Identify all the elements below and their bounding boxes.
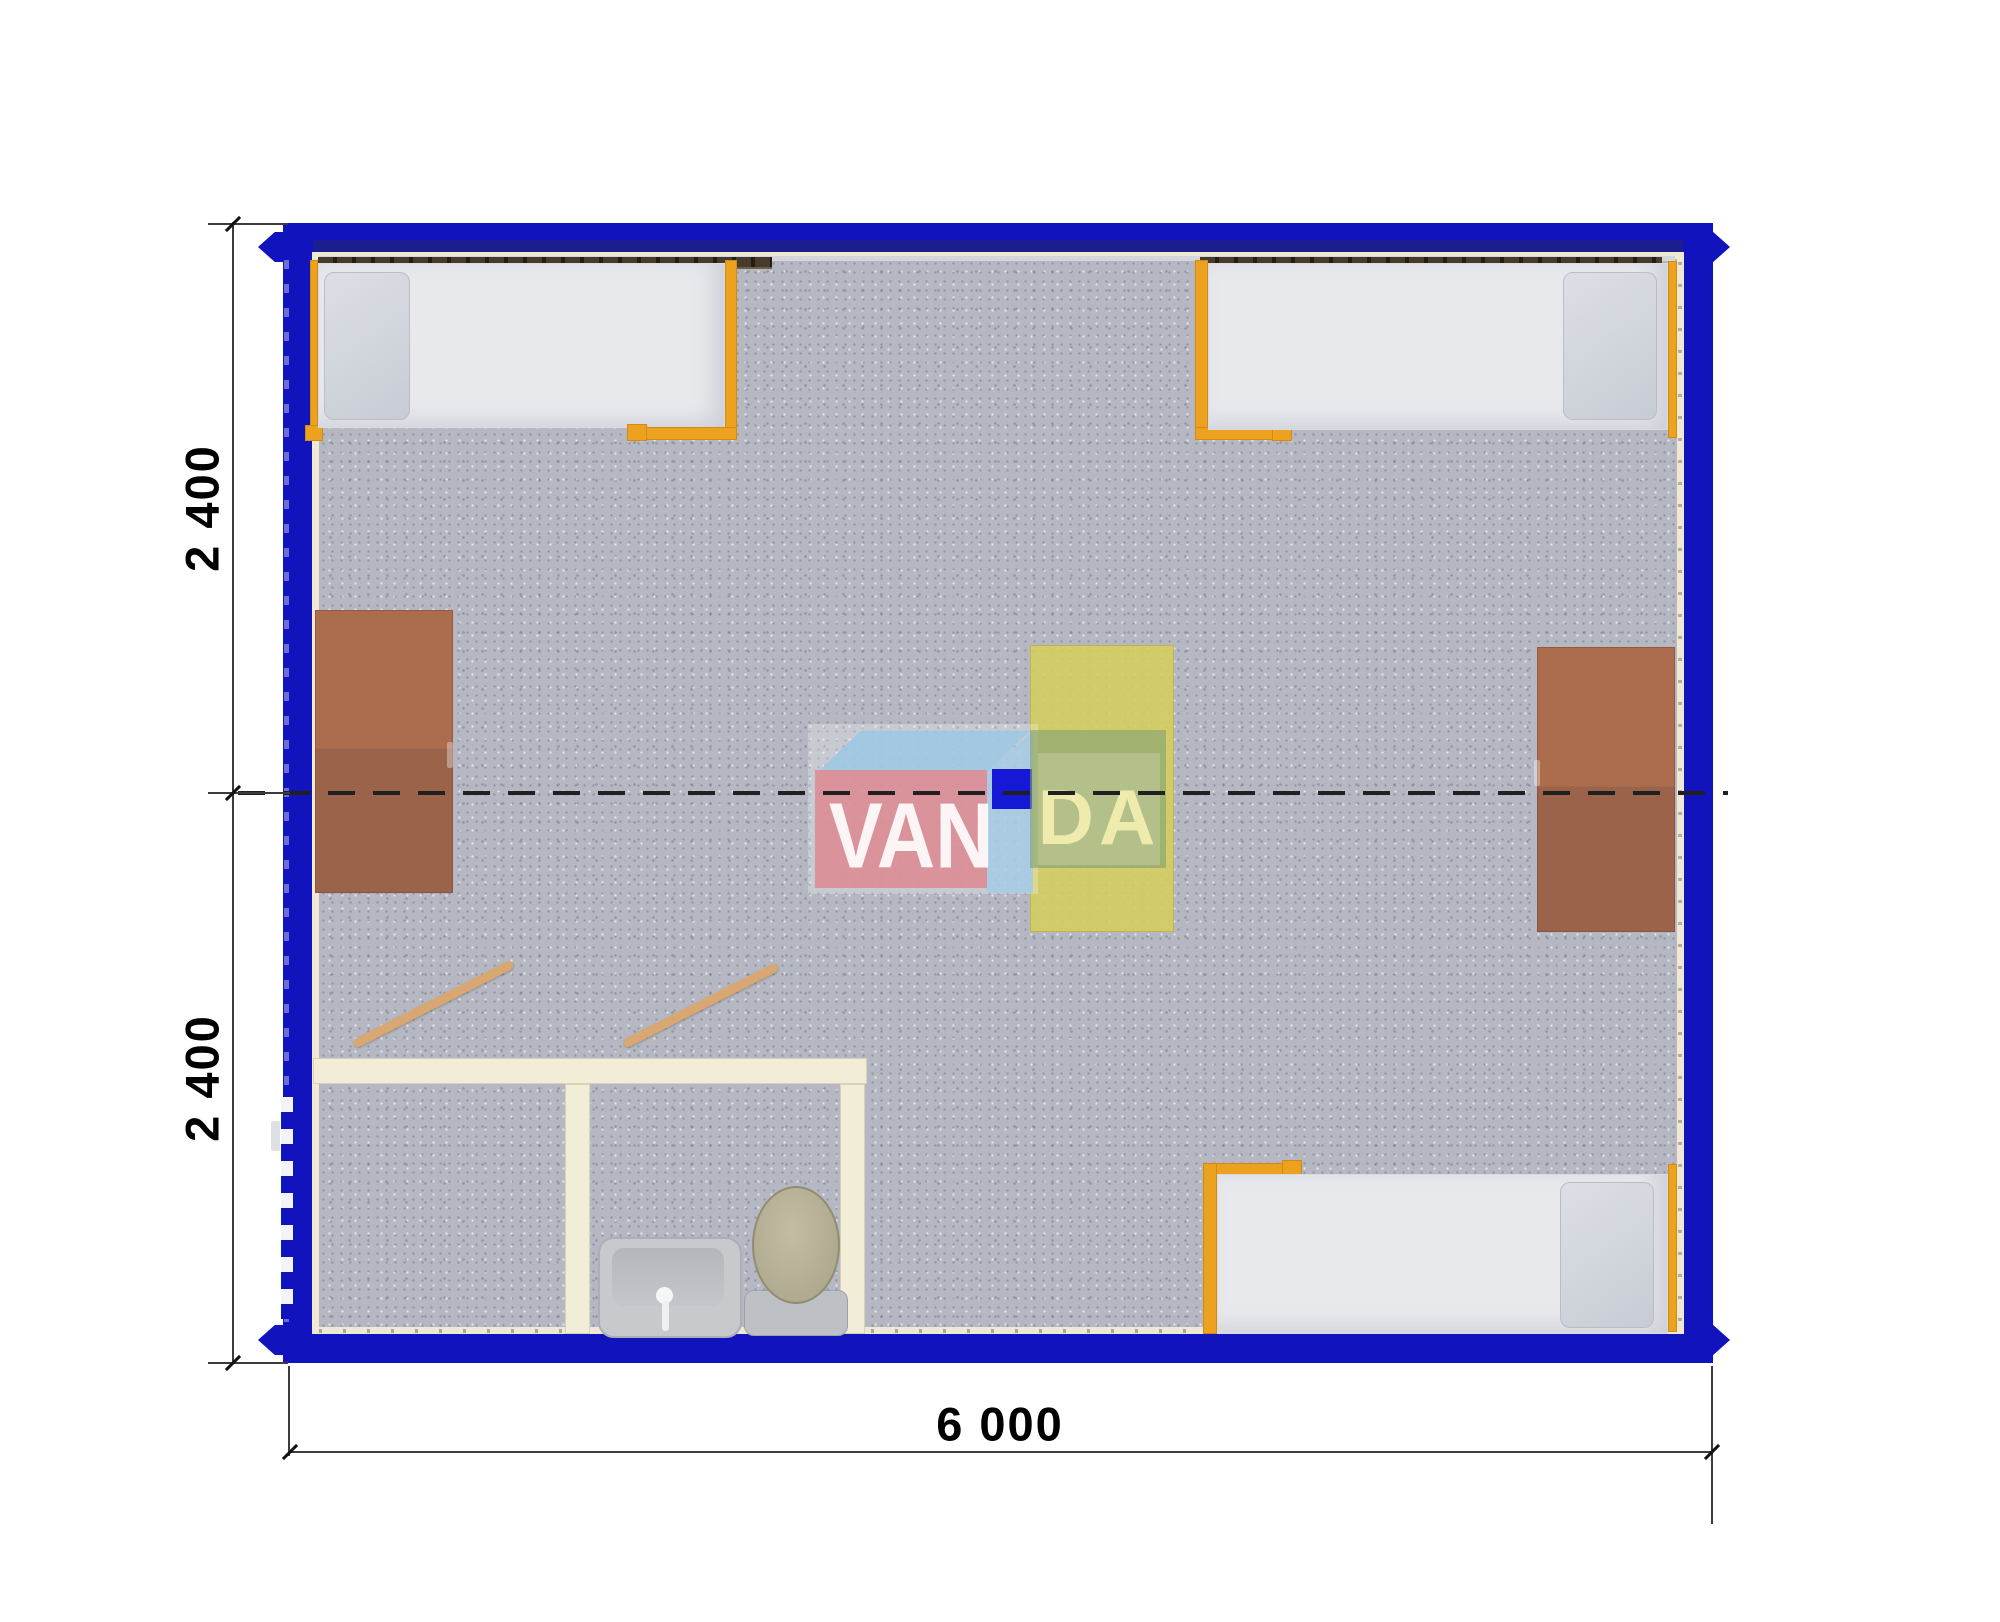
bed-top-left-frame-bar (310, 260, 318, 440)
partition-wall-left (565, 1084, 590, 1334)
dim-ext-bottom-right (1711, 1366, 1713, 1524)
door-handle (271, 1121, 280, 1151)
logo-text-van: VAN (829, 790, 984, 882)
bed-top-left-frame-stub (627, 424, 647, 441)
bed-top-left-frame-bar (640, 427, 737, 440)
bed-bottom-right-frame-bar (1668, 1164, 1677, 1332)
bed-top-right-frame-bar (1668, 261, 1677, 438)
bed-top-right-pillow (1563, 272, 1657, 420)
dim-label-width: 6 000 (936, 1397, 1064, 1452)
logo-blue-square (992, 769, 1032, 809)
section-line (238, 791, 1728, 795)
toilet-lid (752, 1186, 840, 1304)
bed-top-left-frame-bar (725, 260, 737, 440)
floor-plan-canvas: VAN DA 2 400 2 400 6 000 (0, 0, 2000, 1622)
dim-label-height-upper: 2 400 (175, 444, 230, 572)
bed-bottom-right-frame-bar (1203, 1163, 1217, 1334)
partition-wall-horizontal (313, 1058, 867, 1084)
dim-ext-top (208, 223, 288, 225)
bed-top-left-pillow (324, 272, 410, 420)
desk-right (1537, 647, 1675, 932)
dim-ext-bottom-left (288, 1366, 290, 1456)
desk-left (315, 610, 453, 893)
desk-right-handle (1534, 760, 1540, 786)
dim-label-height-lower: 2 400 (175, 1014, 230, 1142)
desk-left-handle (447, 742, 453, 768)
sink-tap-spout (662, 1301, 669, 1331)
bed-bottom-right-pillow (1560, 1182, 1654, 1328)
bed-top-right-frame-bar (1195, 260, 1208, 440)
logo-text-da: DA (1034, 778, 1164, 856)
top-wall-inner-shadow (313, 240, 1683, 252)
left-wall-door-opening (281, 1097, 293, 1319)
dim-ext-mid (208, 792, 290, 794)
dim-ext-bottom (208, 1362, 288, 1364)
sink (598, 1237, 742, 1338)
